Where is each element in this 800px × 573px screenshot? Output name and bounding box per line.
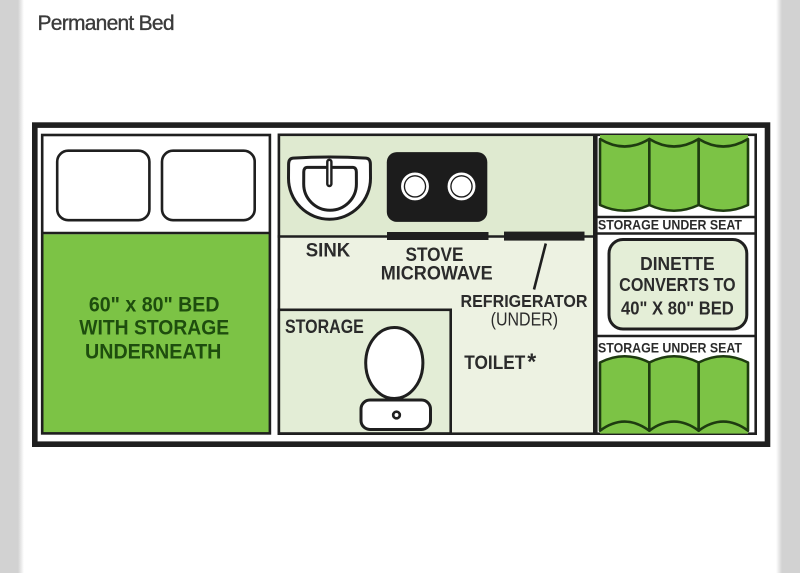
svg-text:MICROWAVE: MICROWAVE [381, 263, 493, 284]
svg-text:TOILET: TOILET [464, 353, 525, 374]
svg-text:Permanent Bed: Permanent Bed [38, 12, 175, 35]
svg-text:STORAGE: STORAGE [285, 317, 364, 338]
svg-text:UNDERNEATH: UNDERNEATH [85, 340, 221, 364]
svg-text:STORAGE UNDER SEAT: STORAGE UNDER SEAT [598, 340, 742, 356]
svg-text:SINK: SINK [306, 240, 351, 261]
svg-text:40" X 80" BED: 40" X 80" BED [621, 297, 734, 318]
svg-text:WITH STORAGE: WITH STORAGE [79, 316, 229, 340]
svg-text:STORAGE UNDER SEAT: STORAGE UNDER SEAT [598, 216, 742, 232]
svg-text:*: * [527, 349, 536, 375]
svg-text:(UNDER): (UNDER) [491, 310, 559, 330]
svg-text:60" x 80" BED: 60" x 80" BED [89, 292, 220, 316]
svg-text:DINETTE: DINETTE [640, 253, 715, 274]
svg-text:REFRIGERATOR: REFRIGERATOR [461, 291, 588, 311]
svg-text:CONVERTS TO: CONVERTS TO [619, 274, 736, 295]
